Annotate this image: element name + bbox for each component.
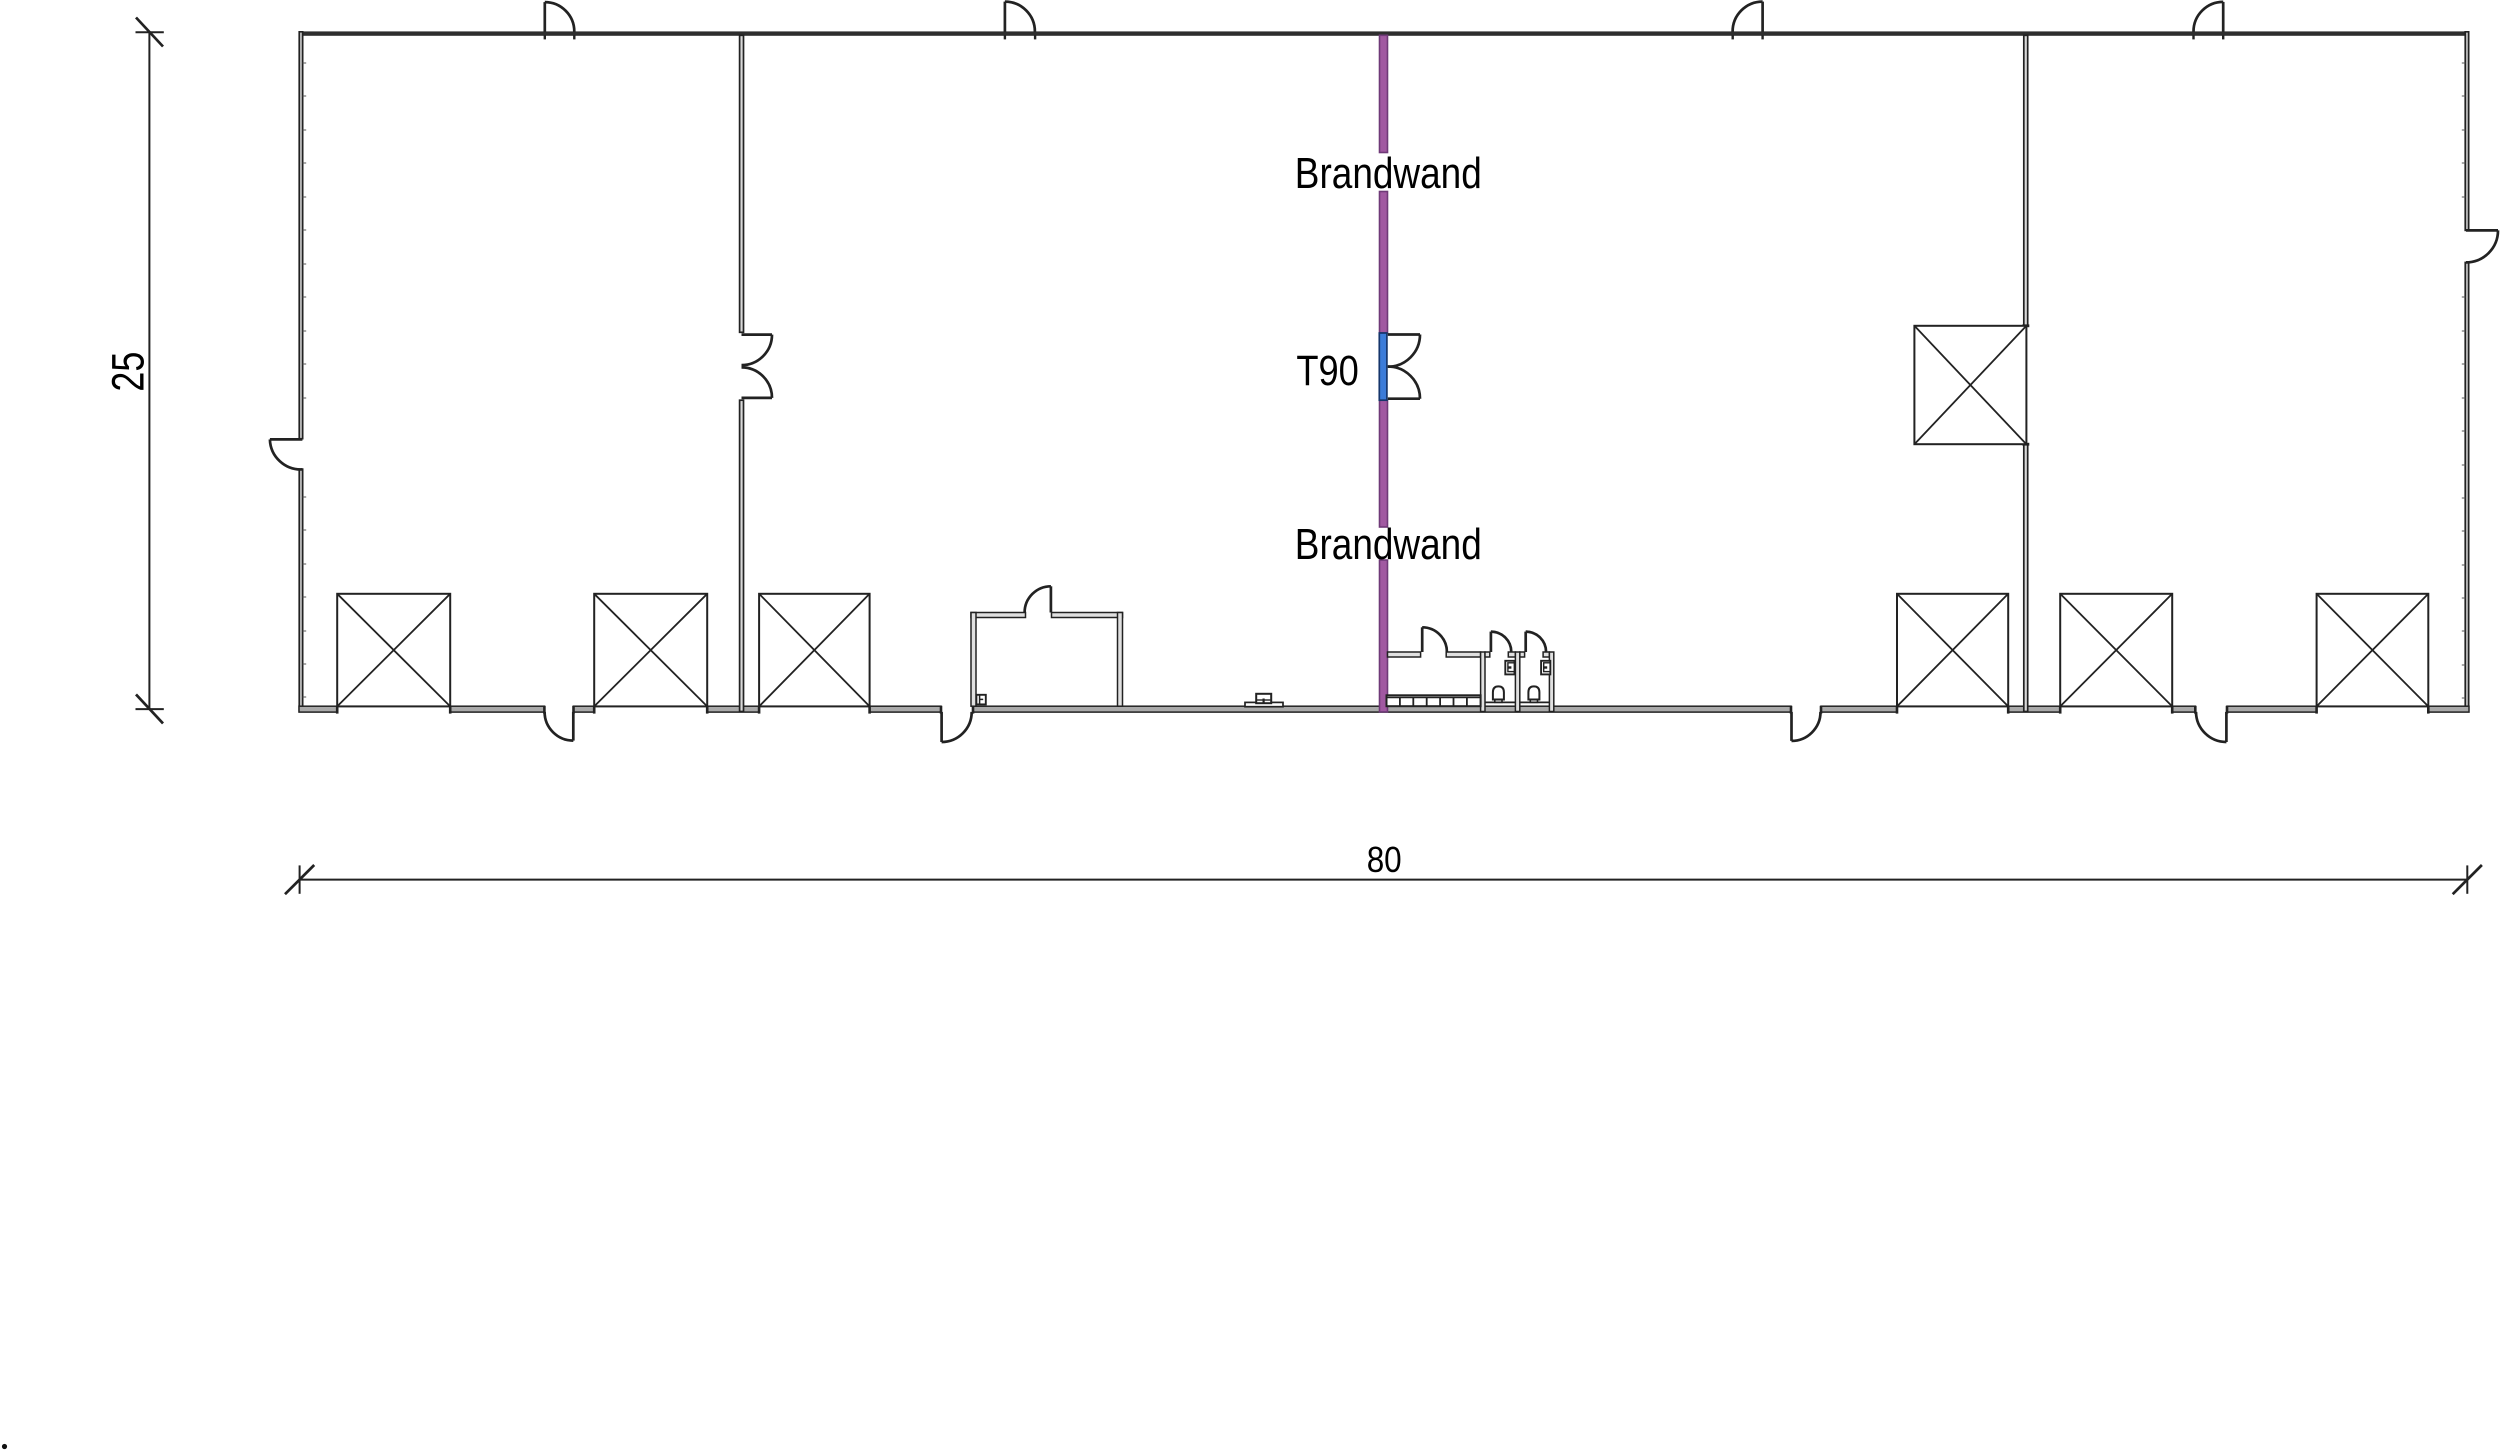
svg-text:T90: T90 xyxy=(1296,347,1359,395)
svg-text:Brandwand: Brandwand xyxy=(1295,149,1482,198)
svg-text:Brandwand: Brandwand xyxy=(1295,520,1482,569)
svg-text:80: 80 xyxy=(1367,839,1402,880)
svg-text:25: 25 xyxy=(103,352,154,392)
